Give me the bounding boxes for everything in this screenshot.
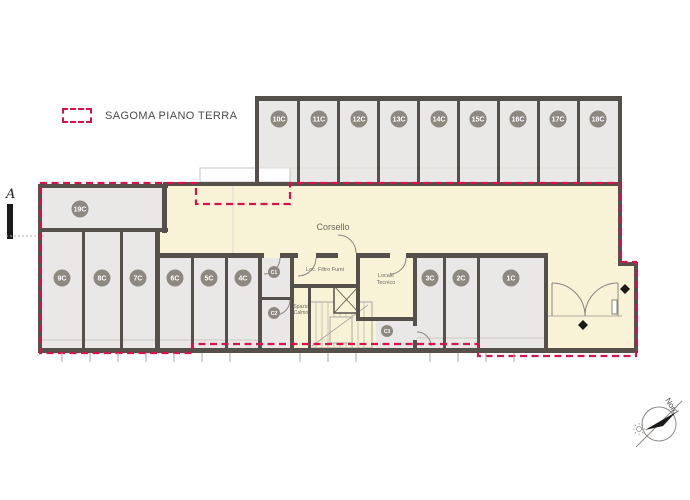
north-compass: Nord xyxy=(633,396,682,447)
locale-tecnico-label-2: Tecnico xyxy=(377,280,396,286)
stall-badge: 5C xyxy=(201,270,218,287)
svg-text:16C: 16C xyxy=(512,117,525,124)
north-needle xyxy=(645,412,676,430)
tick-marks xyxy=(62,353,514,362)
svg-text:3C: 3C xyxy=(426,276,435,283)
svg-text:5C: 5C xyxy=(205,276,214,283)
svg-text:6C: 6C xyxy=(171,276,180,283)
filtro-fumi-label: Loc. Filtro Fumi xyxy=(306,267,344,273)
svg-text:C3: C3 xyxy=(384,329,391,335)
stall-badge: 11C xyxy=(311,111,328,128)
svg-text:8C: 8C xyxy=(98,276,107,283)
stall-badge: 16C xyxy=(510,111,527,128)
stall-badge: 2C xyxy=(453,270,470,287)
svg-text:1C: 1C xyxy=(507,276,516,283)
storage-badge: C2 xyxy=(268,307,280,319)
stall-badge: 6C xyxy=(167,270,184,287)
elevator xyxy=(334,286,359,313)
stall-badge: 13C xyxy=(391,111,408,128)
svg-text:11C: 11C xyxy=(313,117,325,124)
svg-text:15C: 15C xyxy=(472,117,485,124)
stall-badge: 1C xyxy=(503,270,520,287)
storage-badge: C1 xyxy=(268,266,280,278)
stall-badge-left: 19C xyxy=(72,201,89,218)
stall-badge: 9C xyxy=(54,270,71,287)
svg-text:C2: C2 xyxy=(271,311,278,317)
svg-text:12C: 12C xyxy=(353,117,366,124)
svg-text:14C: 14C xyxy=(433,117,446,124)
stall-badge: 8C xyxy=(94,270,111,287)
stall-badge: 10C xyxy=(271,111,288,128)
svg-text:7C: 7C xyxy=(134,276,143,283)
stall-badge: 7C xyxy=(130,270,147,287)
svg-text:9C: 9C xyxy=(58,276,67,283)
stall-badges-top: 10C 11C 12C 13C 14C 15C 16C 17C 18C xyxy=(271,111,607,128)
floor-plan-drawing: 10C 11C 12C 13C 14C 15C 16C 17C 18C 19C … xyxy=(0,0,690,500)
storage-badge: C3 xyxy=(381,325,393,337)
svg-text:18C: 18C xyxy=(592,117,605,124)
svg-text:19C: 19C xyxy=(74,207,87,214)
stall-badge: 17C xyxy=(550,111,567,128)
stall-badge: 15C xyxy=(470,111,487,128)
locale-tecnico-label-1: Locale xyxy=(378,273,394,279)
floor-plan-page: SAGOMA PIANO TERRA A xyxy=(0,0,690,500)
spazio-calmo-label-2: Calmo xyxy=(294,310,309,316)
stall-badge: 18C xyxy=(590,111,607,128)
stall-badge: 14C xyxy=(431,111,448,128)
stall-badge: 3C xyxy=(422,270,439,287)
svg-text:13C: 13C xyxy=(393,117,406,124)
svg-text:2C: 2C xyxy=(457,276,466,283)
stall-badge: 4C xyxy=(235,270,252,287)
corsello-label: Corsello xyxy=(316,222,349,232)
svg-text:10C: 10C xyxy=(273,117,286,124)
north-label: Nord xyxy=(663,396,680,415)
svg-text:4C: 4C xyxy=(239,276,248,283)
svg-text:C1: C1 xyxy=(271,270,278,276)
stall-badge: 12C xyxy=(351,111,368,128)
svg-text:17C: 17C xyxy=(552,117,565,124)
